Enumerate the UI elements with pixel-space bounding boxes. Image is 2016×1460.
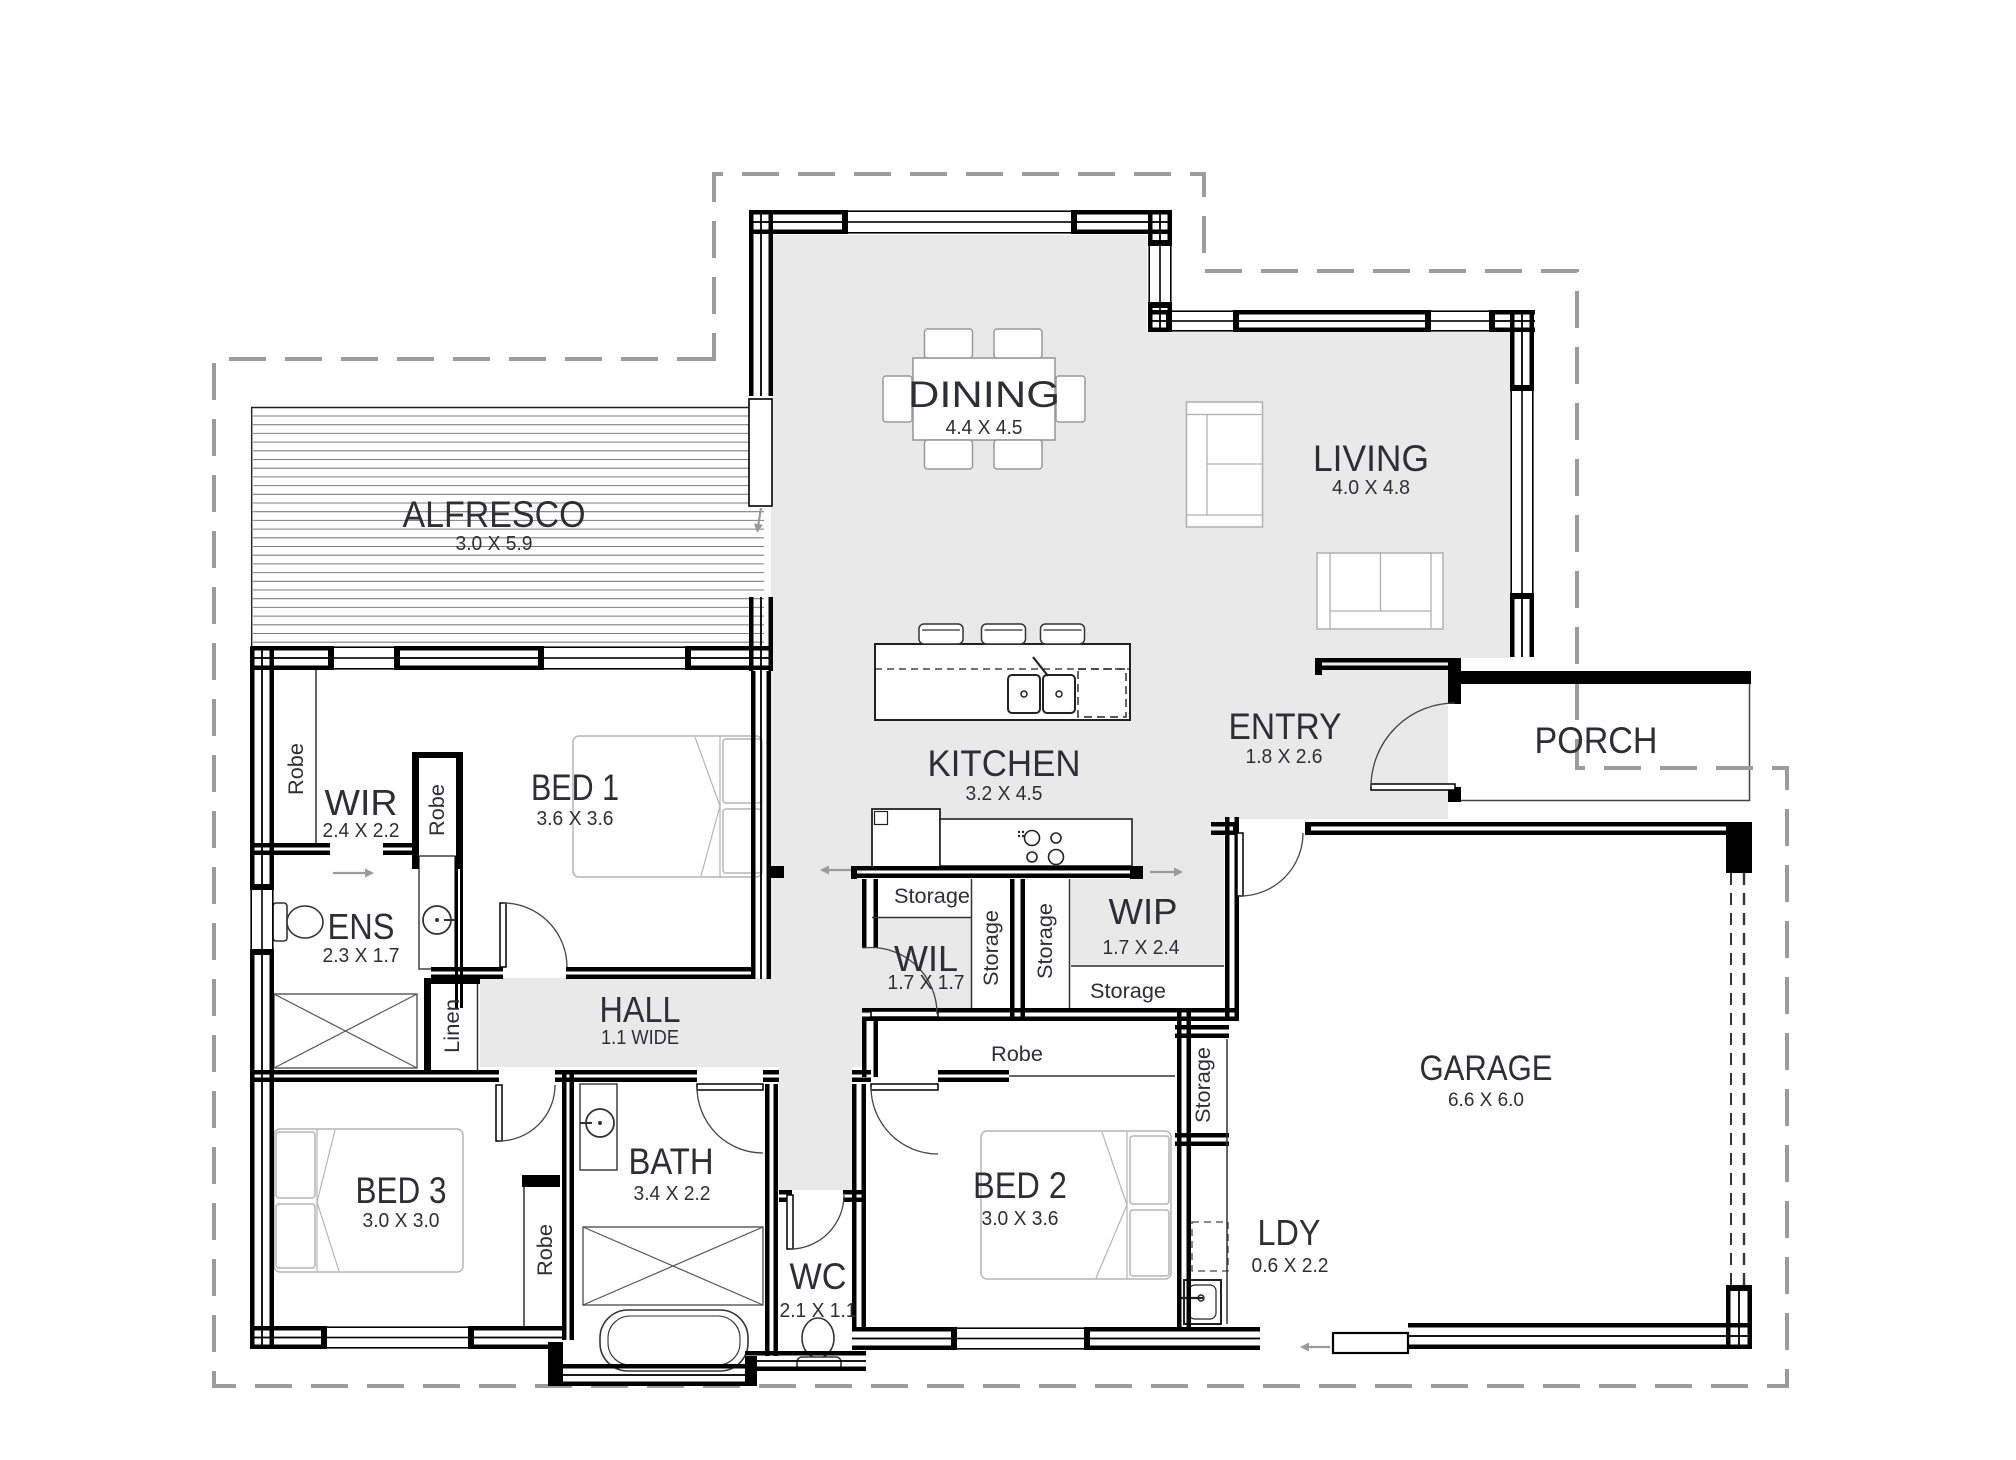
svg-text:BED 3: BED 3 bbox=[356, 1170, 447, 1211]
svg-text:GARAGE: GARAGE bbox=[1420, 1049, 1553, 1088]
svg-text:3.0 X 5.9: 3.0 X 5.9 bbox=[456, 533, 533, 555]
svg-text:Robe: Robe bbox=[285, 743, 308, 795]
svg-text:LIVING: LIVING bbox=[1313, 438, 1429, 479]
svg-text:Robe: Robe bbox=[534, 1224, 557, 1276]
svg-text:BATH: BATH bbox=[629, 1141, 714, 1182]
svg-text:3.4 X 2.2: 3.4 X 2.2 bbox=[634, 1183, 711, 1205]
svg-text:Linen: Linen bbox=[441, 999, 464, 1053]
svg-text:DINING: DINING bbox=[908, 374, 1060, 415]
svg-text:4.4 X 4.5: 4.4 X 4.5 bbox=[946, 417, 1023, 439]
svg-text:KITCHEN: KITCHEN bbox=[928, 743, 1081, 784]
svg-text:1.7 X 1.7: 1.7 X 1.7 bbox=[888, 972, 965, 994]
svg-text:4.0 X 4.8: 4.0 X 4.8 bbox=[1332, 477, 1410, 499]
svg-text:0.6 X 2.2: 0.6 X 2.2 bbox=[1252, 1255, 1329, 1277]
svg-text:PORCH: PORCH bbox=[1535, 720, 1658, 761]
svg-text:1.7 X 2.4: 1.7 X 2.4 bbox=[1103, 937, 1180, 959]
svg-text:BED 2: BED 2 bbox=[973, 1165, 1067, 1206]
svg-text:2.1 X 1.1: 2.1 X 1.1 bbox=[780, 1300, 857, 1322]
svg-text:WC: WC bbox=[790, 1256, 847, 1297]
svg-text:2.3 X 1.7: 2.3 X 1.7 bbox=[323, 945, 400, 967]
svg-text:Storage: Storage bbox=[980, 910, 1003, 986]
svg-text:1.8 X 2.6: 1.8 X 2.6 bbox=[1246, 746, 1323, 768]
svg-text:3.0 X 3.6: 3.0 X 3.6 bbox=[982, 1208, 1059, 1230]
svg-text:Storage: Storage bbox=[894, 885, 970, 908]
svg-text:Storage: Storage bbox=[1192, 1047, 1215, 1123]
svg-text:ENTRY: ENTRY bbox=[1229, 706, 1342, 747]
svg-text:1.1 WIDE: 1.1 WIDE bbox=[601, 1027, 679, 1049]
svg-text:ALFRESCO: ALFRESCO bbox=[403, 494, 586, 535]
svg-text:ENS: ENS bbox=[328, 906, 395, 947]
svg-text:Storage: Storage bbox=[1090, 980, 1166, 1003]
svg-text:3.2 X 4.5: 3.2 X 4.5 bbox=[966, 783, 1043, 805]
svg-text:BED 1: BED 1 bbox=[531, 767, 619, 808]
svg-text:WIR: WIR bbox=[325, 782, 398, 823]
svg-text:WIP: WIP bbox=[1109, 891, 1178, 932]
svg-text:LDY: LDY bbox=[1258, 1212, 1321, 1253]
svg-text:Robe: Robe bbox=[426, 784, 449, 836]
svg-text:HALL: HALL bbox=[600, 989, 681, 1030]
svg-text:Robe: Robe bbox=[991, 1043, 1043, 1066]
svg-text:2.4 X 2.2: 2.4 X 2.2 bbox=[323, 820, 400, 842]
svg-text:Storage: Storage bbox=[1034, 903, 1057, 979]
svg-text:3.6 X 3.6: 3.6 X 3.6 bbox=[537, 808, 614, 830]
svg-text:6.6 X 6.0: 6.6 X 6.0 bbox=[1448, 1090, 1524, 1111]
svg-text:3.0 X 3.0: 3.0 X 3.0 bbox=[363, 1210, 440, 1232]
